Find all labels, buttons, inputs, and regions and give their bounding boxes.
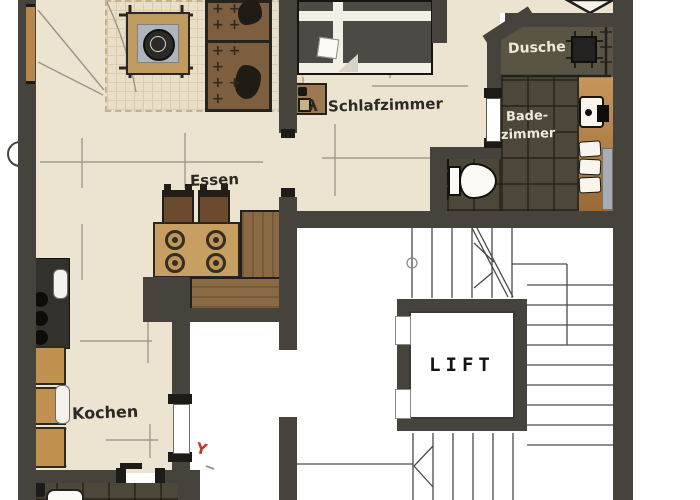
bath-door-leaf xyxy=(486,98,501,142)
lift-cabin: LIFT xyxy=(409,311,515,419)
shower-head-unit xyxy=(571,36,597,63)
lift-door-slot xyxy=(395,316,411,345)
wall-lower-room-right xyxy=(178,483,200,500)
door-jamb xyxy=(484,88,502,98)
plant-icon xyxy=(238,0,262,25)
wall-living-bedroom xyxy=(279,0,297,133)
room-label-bedroom: Schlafzimmer xyxy=(328,94,443,115)
lift-shaft: LIFT xyxy=(397,299,527,431)
wall-bench-back xyxy=(143,308,297,322)
wall-corridor-right-lower xyxy=(279,417,297,500)
sofa-shelf: + ++ + + +++ ++ xyxy=(205,0,272,112)
floor-plan: + ++ + + +++ ++ λ xyxy=(0,0,700,500)
outer-wall-right xyxy=(613,0,633,500)
lamp-symbol: λ xyxy=(308,96,318,115)
room-label-dining: Essen xyxy=(190,170,240,190)
faucet-dot xyxy=(585,109,592,116)
plate xyxy=(206,230,226,250)
lower-room-sink xyxy=(46,489,84,500)
lift-label: LIFT xyxy=(429,354,495,376)
radiator-strip xyxy=(602,148,613,210)
door-leaf-mark xyxy=(120,463,142,469)
wall-toilet-nook-top xyxy=(430,147,501,159)
cutoff-fixture-triangle xyxy=(567,0,613,13)
wall-bath-left xyxy=(487,36,501,93)
door-jamb xyxy=(281,188,295,197)
faucet-bar xyxy=(597,105,609,122)
plate xyxy=(165,230,185,250)
plate xyxy=(165,253,185,273)
kitchen-sink xyxy=(55,385,70,424)
dining-table xyxy=(153,222,240,278)
wall-flat-bottom xyxy=(36,470,125,483)
plan-linework xyxy=(0,0,700,500)
room-label-shower: Dusche xyxy=(508,39,566,57)
entry-door-leaf xyxy=(173,404,190,454)
towel xyxy=(579,176,602,193)
door-jamb xyxy=(116,468,126,483)
towel xyxy=(579,158,602,175)
bed-pillow xyxy=(317,37,340,60)
bed-foot-line xyxy=(299,63,431,73)
window-left xyxy=(26,4,35,84)
coffee-table-bowl xyxy=(143,29,175,61)
stove-dish xyxy=(53,269,68,299)
wall-stairwell-top xyxy=(279,211,633,228)
bathroom-sink xyxy=(579,96,604,128)
wall-bedroom-right-stub xyxy=(432,0,447,43)
dining-chair xyxy=(162,184,194,224)
plate xyxy=(206,253,226,273)
bed-blanket-line xyxy=(299,11,431,21)
red-dash-mark xyxy=(206,466,214,469)
wall-toilet-nook-left xyxy=(430,159,447,211)
door-jamb xyxy=(168,394,192,404)
door-jamb xyxy=(281,129,295,138)
room-label-bathroom-line2: zimmer xyxy=(501,126,556,143)
room-label-bathroom-line1: Bade- xyxy=(506,108,549,124)
dining-chair xyxy=(198,184,230,224)
wall-kitchen-right-upper xyxy=(172,285,190,402)
coffee-table xyxy=(126,12,190,75)
double-bed xyxy=(297,0,433,75)
towel xyxy=(578,140,601,157)
corner-bench xyxy=(190,277,283,310)
lift-door-slot xyxy=(395,389,411,419)
door-jamb xyxy=(155,468,165,483)
room-label-kitchen: Kochen xyxy=(72,402,139,423)
